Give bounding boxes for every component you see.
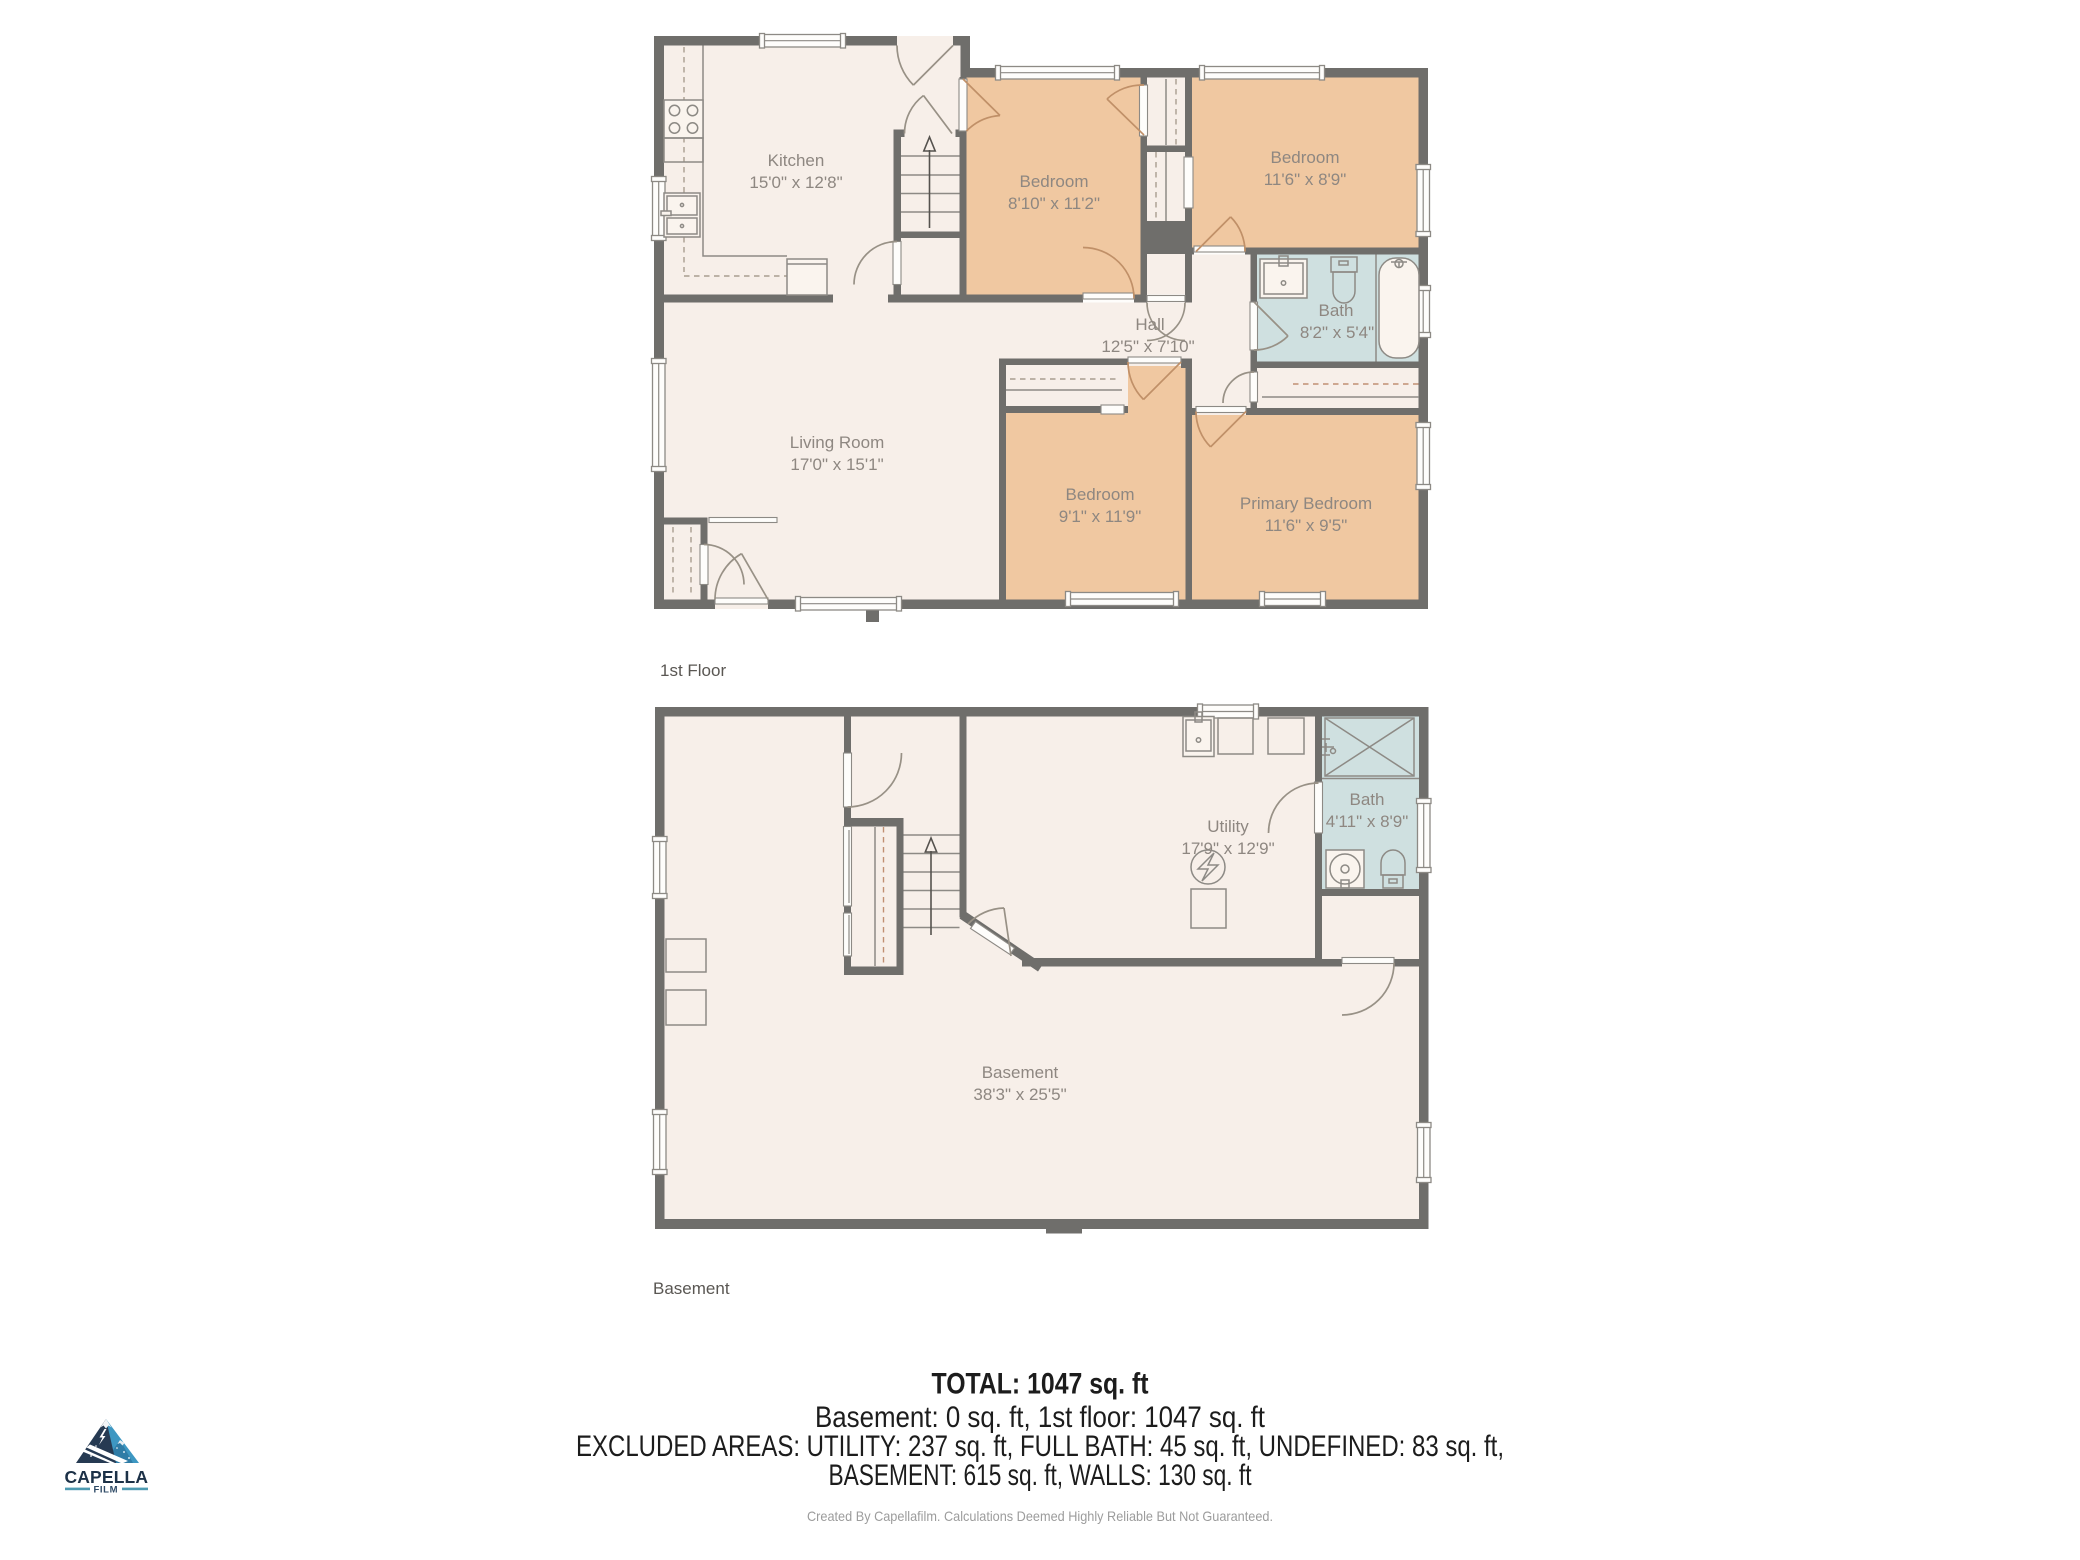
svg-text:11'6" x 9'5": 11'6" x 9'5" (1265, 516, 1348, 535)
svg-text:TOTAL: 1047 sq. ft: TOTAL: 1047 sq. ft (932, 1368, 1149, 1401)
svg-text:9'1" x 11'9": 9'1" x 11'9" (1059, 507, 1142, 526)
svg-text:38'3" x 25'5": 38'3" x 25'5" (973, 1085, 1066, 1104)
svg-text:Hall: Hall (1135, 315, 1164, 334)
svg-text:FILM: FILM (94, 1485, 121, 1496)
svg-text:Primary Bedroom: Primary Bedroom (1240, 494, 1372, 513)
svg-text:11'6" x 8'9": 11'6" x 8'9" (1264, 170, 1347, 189)
svg-text:Bedroom: Bedroom (1020, 172, 1089, 191)
svg-text:Created By Capellafilm. Calcul: Created By Capellafilm. Calculations Dee… (807, 1508, 1273, 1524)
svg-text:Basement: Basement (982, 1063, 1059, 1082)
svg-text:Bedroom: Bedroom (1066, 485, 1135, 504)
svg-text:BASEMENT: 615 sq. ft, WALLS: 1: BASEMENT: 615 sq. ft, WALLS: 130 sq. ft (829, 1459, 1252, 1492)
svg-text:15'0" x 12'8": 15'0" x 12'8" (749, 173, 842, 192)
svg-text:Living Room: Living Room (790, 433, 885, 452)
svg-text:17'9" x 12'9": 17'9" x 12'9" (1181, 839, 1274, 858)
svg-text:8'10" x 11'2": 8'10" x 11'2" (1008, 194, 1100, 213)
svg-text:17'0" x 15'1": 17'0" x 15'1" (790, 455, 883, 474)
svg-text:Kitchen: Kitchen (768, 151, 825, 170)
svg-text:Bath: Bath (1319, 301, 1354, 320)
svg-text:8'2" x 5'4": 8'2" x 5'4" (1300, 323, 1374, 342)
svg-text:Utility: Utility (1207, 817, 1249, 836)
svg-text:4'11" x 8'9": 4'11" x 8'9" (1326, 812, 1409, 831)
svg-text:12'5" x 7'10": 12'5" x 7'10" (1101, 337, 1194, 356)
svg-text:Basement: Basement (653, 1279, 730, 1298)
svg-text:1st Floor: 1st Floor (660, 661, 726, 680)
svg-text:Bedroom: Bedroom (1271, 148, 1340, 167)
svg-text:Bath: Bath (1350, 790, 1385, 809)
